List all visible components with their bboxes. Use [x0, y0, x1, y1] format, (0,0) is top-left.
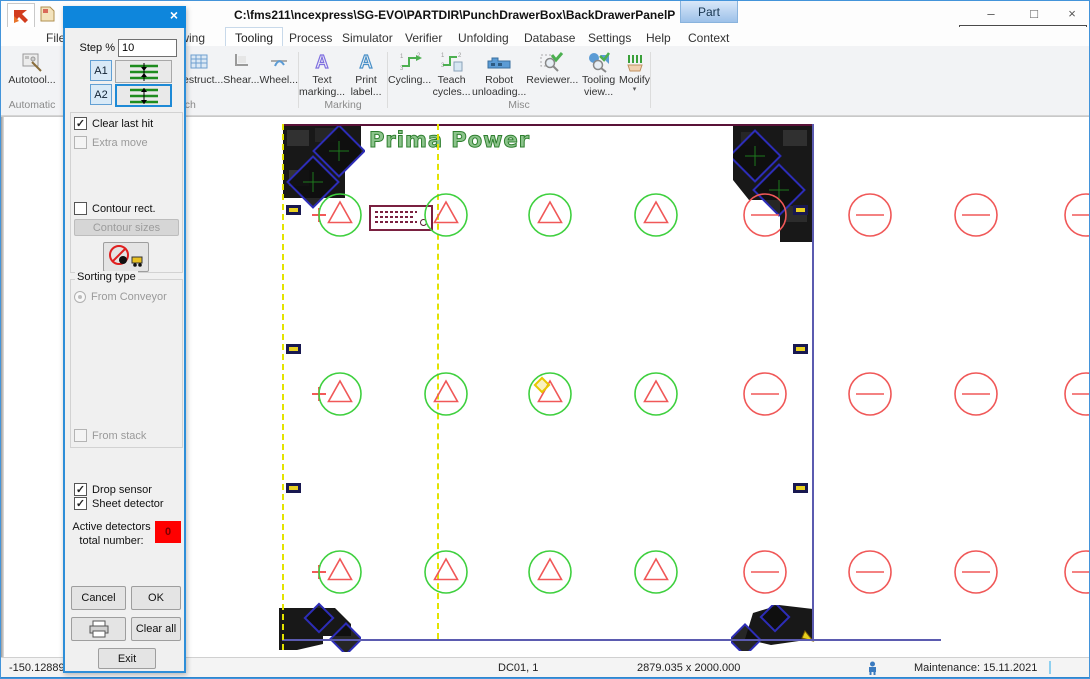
a1-button[interactable]: A1 — [90, 60, 112, 81]
label-text-line — [375, 221, 417, 223]
a2-step-direction-button[interactable] — [115, 84, 172, 107]
print-label-icon: A — [354, 49, 378, 75]
label-text-line — [375, 216, 413, 218]
ribbon-group-label-misc: Misc — [388, 99, 650, 111]
punch-hit-triangle[interactable] — [423, 371, 469, 422]
status-tick — [1049, 661, 1051, 674]
punch-hit-circle-line[interactable] — [847, 371, 893, 422]
ribbon-button-wheel[interactable]: Wheel... — [259, 46, 298, 87]
ribbon-button-reviewer[interactable]: Reviewer... — [526, 46, 578, 87]
checkbox-icon — [74, 136, 87, 149]
maintenance-icon — [867, 661, 878, 678]
menu-settings[interactable]: Settings — [584, 29, 635, 47]
active-detectors-line2: total number: — [69, 535, 154, 549]
autotool-icon — [20, 49, 44, 75]
svg-text:A: A — [360, 52, 373, 72]
step-input[interactable] — [118, 39, 177, 57]
punch-hit-circle-line[interactable] — [953, 192, 999, 243]
punch-hit-circle-line[interactable] — [742, 192, 788, 243]
punch-hit-circle-line[interactable] — [847, 192, 893, 243]
menu-simulator[interactable]: Simulator — [338, 29, 397, 47]
checkbox-icon — [74, 202, 87, 215]
ribbon-button-text-marking[interactable]: A Text marking... — [299, 46, 345, 99]
punch-hit-triangle[interactable] — [527, 371, 573, 422]
sorting-type-label: Sorting type — [75, 271, 138, 283]
cycling-icon: 123 — [397, 49, 423, 75]
ribbon-group-marking: A Text marking... A Print label... Marki… — [299, 46, 387, 114]
radio-icon — [74, 291, 86, 303]
dialog-close-icon[interactable]: × — [170, 7, 178, 23]
clamp-dead-zone-bottom-left — [279, 602, 361, 657]
station-indicator: DC01, 1 — [498, 662, 538, 674]
svg-text:1: 1 — [400, 54, 404, 60]
selected-hit-highlight — [536, 379, 548, 391]
from-stack-checkbox: From stack — [74, 429, 146, 442]
teach-cycles-icon: 123 — [439, 49, 465, 75]
svg-text:A: A — [316, 52, 329, 72]
ribbon-button-cycling[interactable]: 123 Cycling... — [388, 46, 431, 87]
punch-hit-triangle[interactable] — [317, 192, 363, 243]
checkbox-icon — [74, 483, 87, 496]
checkbox-label: Contour rect. — [92, 203, 156, 215]
menu-database[interactable]: Database — [520, 29, 579, 47]
punch-hit-triangle[interactable] — [633, 192, 679, 243]
sheet-bottom-edge — [282, 639, 941, 641]
maintenance-date: Maintenance: 15.11.2021 — [914, 662, 1037, 674]
step-direction-icon-a1 — [124, 63, 164, 81]
prima-power-logo: Prima Power — [369, 128, 530, 152]
ribbon-button-autotool[interactable]: Autotool... — [8, 46, 55, 87]
ribbon-group-automatic: Autotool... Automatic — [1, 46, 63, 114]
ok-button[interactable]: OK — [131, 586, 181, 610]
sheet-right-edge — [812, 124, 814, 639]
extra-move-checkbox: Extra move — [74, 136, 148, 149]
punch-hit-circle-line[interactable] — [953, 371, 999, 422]
menu-unfolding[interactable]: Unfolding — [454, 29, 513, 47]
a2-button[interactable]: A2 — [90, 84, 112, 105]
checkbox-label: Extra move — [92, 137, 148, 149]
tooling-view-icon — [586, 49, 612, 75]
shear-icon — [229, 49, 253, 75]
contour-sizes-button: Contour sizes — [74, 219, 179, 236]
printer-icon — [88, 620, 110, 638]
clear-last-hit-checkbox[interactable]: Clear last hit — [74, 117, 153, 130]
context-tab-part[interactable]: Part — [680, 1, 738, 23]
active-detectors-line1: Active detectors — [69, 521, 154, 535]
checkbox-icon — [74, 117, 87, 130]
sorting-group-box — [70, 279, 183, 448]
app-logo-icon — [7, 3, 35, 29]
ribbon-group-label-automatic: Automatic — [1, 99, 63, 111]
ribbon-button-modify[interactable]: Modify ▾ — [619, 46, 650, 92]
checkbox-label: From stack — [92, 430, 146, 442]
destruct-icon — [187, 49, 211, 75]
punch-hit-circle-line[interactable] — [1063, 192, 1090, 243]
text-marking-icon: A — [310, 49, 334, 75]
clear-all-button[interactable]: Clear all — [131, 617, 181, 641]
punch-hit-triangle[interactable] — [423, 192, 469, 243]
ribbon-button-tooling-view[interactable]: Tooling view... — [578, 46, 619, 99]
punch-hit-triangle[interactable] — [633, 371, 679, 422]
punch-sorting-tool-button[interactable] — [103, 242, 149, 272]
print-button[interactable] — [71, 617, 126, 641]
punch-hit-triangle[interactable] — [423, 549, 469, 600]
modify-icon — [623, 49, 647, 75]
sheet-dashed-guide — [282, 124, 284, 650]
checkbox-icon — [74, 497, 87, 510]
punch-hit-circle-line[interactable] — [742, 371, 788, 422]
no-punch-cart-icon — [106, 244, 146, 270]
svg-text:1: 1 — [441, 53, 445, 59]
robot-unloading-icon — [485, 49, 513, 75]
clamp-position-marker — [286, 483, 301, 493]
sheet-detector-checkbox[interactable]: Sheet detector — [74, 497, 164, 510]
document-icon[interactable] — [39, 6, 56, 22]
punch-hit-circle-line[interactable] — [953, 549, 999, 600]
active-detectors-count: 0 — [155, 521, 181, 543]
part-top-edge — [282, 124, 812, 126]
a1-step-direction-button[interactable] — [115, 60, 172, 83]
clamp-dead-zone-bottom-right — [731, 605, 817, 656]
close-button[interactable]: × — [1057, 4, 1087, 24]
canvas-edge-strip — [1, 117, 4, 657]
punch-hit-triangle[interactable] — [633, 549, 679, 600]
checkbox-label: Drop sensor — [92, 484, 152, 496]
clamp-position-marker — [286, 205, 301, 215]
ribbon-button-robot-unloading[interactable]: Robot unloading... — [472, 46, 526, 99]
application-window: C:\fms211\ncexpress\SG-EVO\PARTDIR\Punch… — [0, 0, 1090, 679]
punch-hit-triangle[interactable] — [317, 371, 363, 422]
clamp-position-marker — [286, 344, 301, 354]
label-text-line — [375, 211, 417, 213]
clamp-position-marker — [793, 344, 808, 354]
clamp-position-marker — [793, 483, 808, 493]
cursor-coordinate: -150.12889 — [9, 662, 65, 674]
contour-rect-checkbox[interactable]: Contour rect. — [74, 202, 156, 215]
cancel-button[interactable]: Cancel — [71, 586, 126, 610]
sheet-size-indicator: 2879.035 x 2000.000 — [637, 662, 740, 674]
ribbon-group-label-marking: Marking — [299, 99, 387, 111]
punch-hit-triangle[interactable] — [317, 549, 363, 600]
minimize-button[interactable]: – — [976, 4, 1006, 24]
drop-sensor-checkbox[interactable]: Drop sensor — [74, 483, 152, 496]
ribbon-button-shear[interactable]: Shear... — [223, 46, 259, 87]
ribbon-group-misc: 123 Cycling... 123 Teach cycles... Robot… — [388, 46, 650, 114]
from-conveyor-radio: From Conveyor — [74, 291, 167, 303]
radio-label: From Conveyor — [91, 291, 167, 303]
reviewer-icon — [539, 49, 565, 75]
punch-hit-circle-line[interactable] — [1063, 549, 1090, 600]
dialog-title-bar[interactable]: × — [63, 6, 186, 28]
checkbox-label: Clear last hit — [92, 118, 153, 130]
punch-hit-triangle[interactable] — [527, 549, 573, 600]
window-title: C:\fms211\ncexpress\SG-EVO\PARTDIR\Punch… — [234, 8, 675, 22]
menu-context[interactable]: Context — [684, 29, 733, 47]
menu-process[interactable]: Process — [285, 29, 336, 47]
menu-tooling[interactable]: Tooling — [225, 27, 283, 48]
wheel-icon — [267, 49, 291, 75]
checkbox-label: Sheet detector — [92, 498, 164, 510]
exit-button[interactable]: Exit — [98, 648, 156, 669]
ribbon-separator — [650, 52, 651, 108]
punch-hit-circle-line[interactable] — [1063, 371, 1090, 422]
maximize-button[interactable]: □ — [1019, 4, 1049, 24]
step-label: Step % — [73, 42, 115, 54]
clamp-position-marker — [793, 205, 808, 215]
svg-text:2: 2 — [458, 53, 462, 59]
punch-hit-triangle[interactable] — [527, 192, 573, 243]
punch-hit-circle-line[interactable] — [742, 549, 788, 600]
step-direction-icon-a2 — [124, 87, 164, 105]
menu-verifier[interactable]: Verifier — [401, 29, 446, 47]
ribbon-button-teach-cycles[interactable]: 123 Teach cycles... — [431, 46, 472, 99]
active-detectors-label: Active detectors total number: — [69, 521, 154, 549]
ribbon-button-print-label[interactable]: A Print label... — [345, 46, 387, 99]
menu-help[interactable]: Help — [642, 29, 675, 47]
punch-hit-circle-line[interactable] — [847, 549, 893, 600]
checkbox-icon — [74, 429, 87, 442]
cycling-dialog: × Step % A1 A2 Clear last hit — [63, 6, 186, 673]
chevron-down-icon: ▾ — [633, 87, 637, 92]
